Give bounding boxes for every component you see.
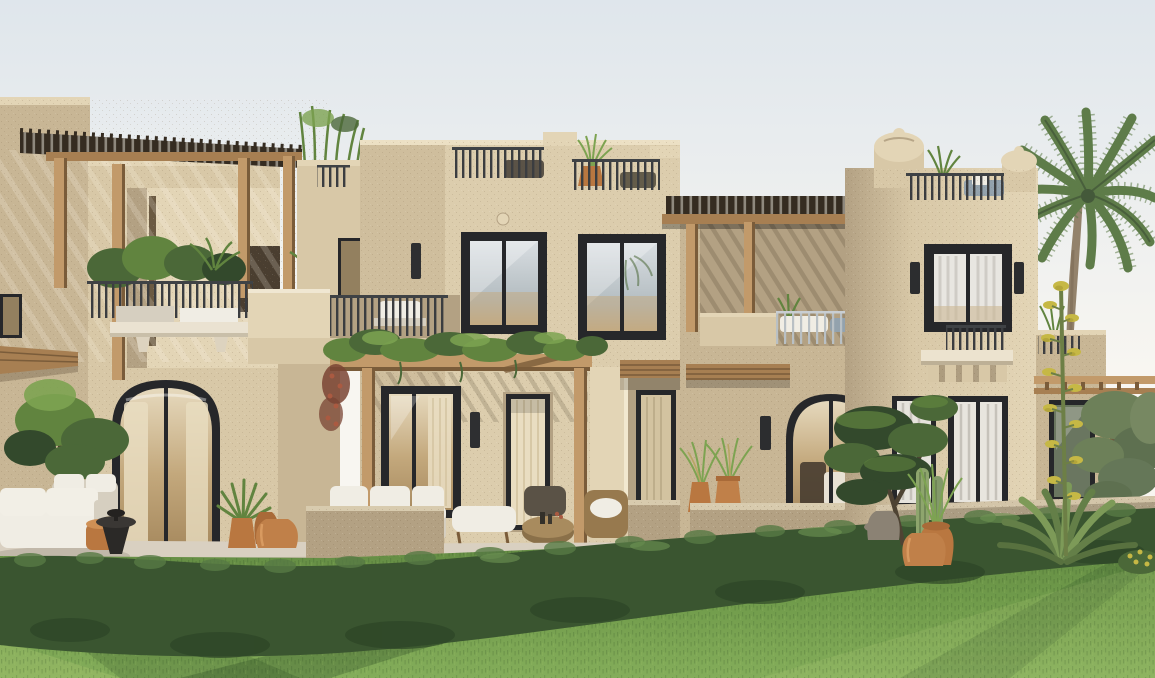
chaise	[452, 506, 516, 532]
wall-sconce	[910, 262, 920, 294]
wall-sconce	[470, 412, 480, 448]
wall-sconce	[1014, 262, 1024, 294]
wall-medallion	[497, 213, 509, 225]
right-upper-window	[924, 244, 1012, 332]
architectural-render	[0, 0, 1155, 678]
middle-upper-window-left	[461, 232, 547, 334]
planter-box	[180, 308, 238, 324]
villa-scene	[0, 0, 1155, 678]
left-balcony	[87, 236, 262, 352]
middle-upper-window-right	[578, 234, 666, 340]
planter-box	[116, 306, 174, 324]
lower-awning	[686, 364, 790, 388]
wall-sconce	[411, 243, 421, 279]
wall-sconce	[760, 416, 771, 450]
wicker-chair	[524, 486, 566, 516]
right-ground-window-right	[948, 396, 1008, 508]
